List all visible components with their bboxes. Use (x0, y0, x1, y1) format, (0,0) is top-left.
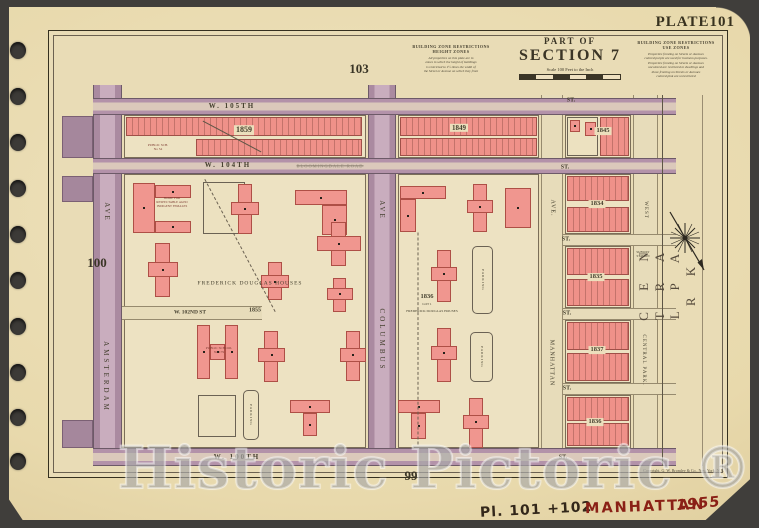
legend-subtitle: USE ZONES (632, 45, 720, 50)
rowhouse-strip (567, 423, 629, 446)
building (210, 344, 225, 360)
building (225, 325, 238, 379)
building (133, 183, 155, 233)
row-end-stub (62, 420, 93, 448)
street-w-104th-st (93, 158, 676, 174)
use-zones-legend: BUILDING ZONE RESTRICTIONS USE ZONES Pro… (632, 40, 720, 79)
rowhouse-strip (126, 117, 362, 136)
map-line (418, 233, 419, 445)
street-w-103rd-st (563, 234, 676, 246)
map-line (702, 95, 703, 466)
building (411, 413, 426, 439)
street-w-102nd-st-east (563, 308, 676, 320)
building (467, 200, 493, 213)
binding-hole (10, 226, 26, 243)
map-line (662, 95, 663, 466)
building (400, 199, 416, 232)
building (327, 288, 353, 300)
section-title: SECTION 7 (500, 47, 640, 65)
street-w-100th-st (93, 448, 676, 466)
building (472, 246, 493, 314)
legend-body: Properties fronting on Streets or Avenue… (632, 52, 720, 80)
building (431, 267, 457, 281)
binding-hole (10, 180, 26, 197)
building (155, 185, 191, 198)
rowhouse-strip (567, 248, 629, 275)
binding-hole (10, 88, 26, 105)
scanned-atlas-sheet: { "page": { "plate_label": "PLATE101", "… (0, 0, 759, 528)
binding-hole (10, 409, 26, 426)
legend-body: All properties on this plate are in zone… (402, 56, 500, 74)
building (231, 202, 259, 215)
scan-edge-bottom (0, 520, 759, 528)
building (400, 186, 446, 199)
avenue-columbus-ave (368, 85, 396, 466)
building (317, 236, 361, 251)
building (197, 325, 210, 379)
building (243, 390, 259, 440)
copyright-line: Copyright, G. W. Bromley & Co., New York… (624, 468, 724, 473)
rowhouse-strip (196, 139, 362, 156)
page-rounded-corner (716, 0, 759, 42)
building (398, 400, 440, 413)
binding-hole (10, 272, 26, 289)
scale-bar (519, 74, 621, 80)
rowhouse-strip (567, 397, 629, 421)
height-zones-legend: BUILDING ZONE RESTRICTIONS HEIGHT ZONES … (402, 44, 500, 74)
rowhouse-strip (567, 176, 629, 201)
building (198, 395, 236, 437)
avenue-central-park-west (633, 95, 658, 466)
row-end-stub (62, 176, 93, 202)
binding-hole (10, 318, 26, 335)
building (570, 120, 580, 132)
rowhouse-strip (600, 117, 629, 156)
avenue-manhattan-ave (541, 95, 563, 466)
rowhouse-strip (567, 322, 629, 350)
compass-rose-icon (664, 206, 710, 278)
street-w-105th-st (93, 98, 676, 115)
part-of-label: PART OF (500, 36, 640, 46)
building (463, 415, 489, 429)
adjacent-plate-ref-bottom: 99 (396, 468, 426, 484)
building (148, 262, 178, 277)
building (295, 190, 347, 205)
adjacent-plate-ref-top: 103 (343, 61, 375, 77)
scan-edge-left (0, 0, 9, 528)
binding-hole (10, 364, 26, 381)
title-block: PART OF SECTION 7 Scale 100 Feet to the … (500, 36, 640, 80)
avenue-amsterdam-ave (93, 85, 122, 466)
building (303, 413, 317, 436)
building (340, 348, 366, 362)
scan-edge-right (750, 0, 759, 528)
scale-label: Scale 100 Feet to the Inch (500, 67, 640, 72)
street-w-101st-st (563, 383, 676, 395)
binding-hole (10, 42, 26, 59)
binding-hole (10, 453, 26, 470)
street-w-102nd-st-stub (122, 306, 262, 320)
building (505, 188, 531, 228)
scan-edge-top (0, 0, 759, 7)
rowhouse-strip (567, 353, 629, 381)
building (258, 348, 285, 362)
rowhouse-strip (400, 117, 537, 136)
building (431, 346, 457, 360)
building (290, 400, 330, 413)
legend-subtitle: HEIGHT ZONES (402, 49, 500, 54)
rowhouse-strip (567, 279, 629, 306)
building (155, 221, 191, 233)
row-end-stub (62, 116, 93, 158)
building (585, 122, 596, 136)
rowhouse-strip (400, 138, 537, 156)
binding-hole (10, 134, 26, 151)
adjacent-plate-ref-left: 100 (80, 255, 114, 271)
building (261, 275, 289, 288)
building (470, 332, 493, 382)
rowhouse-strip (567, 207, 629, 232)
